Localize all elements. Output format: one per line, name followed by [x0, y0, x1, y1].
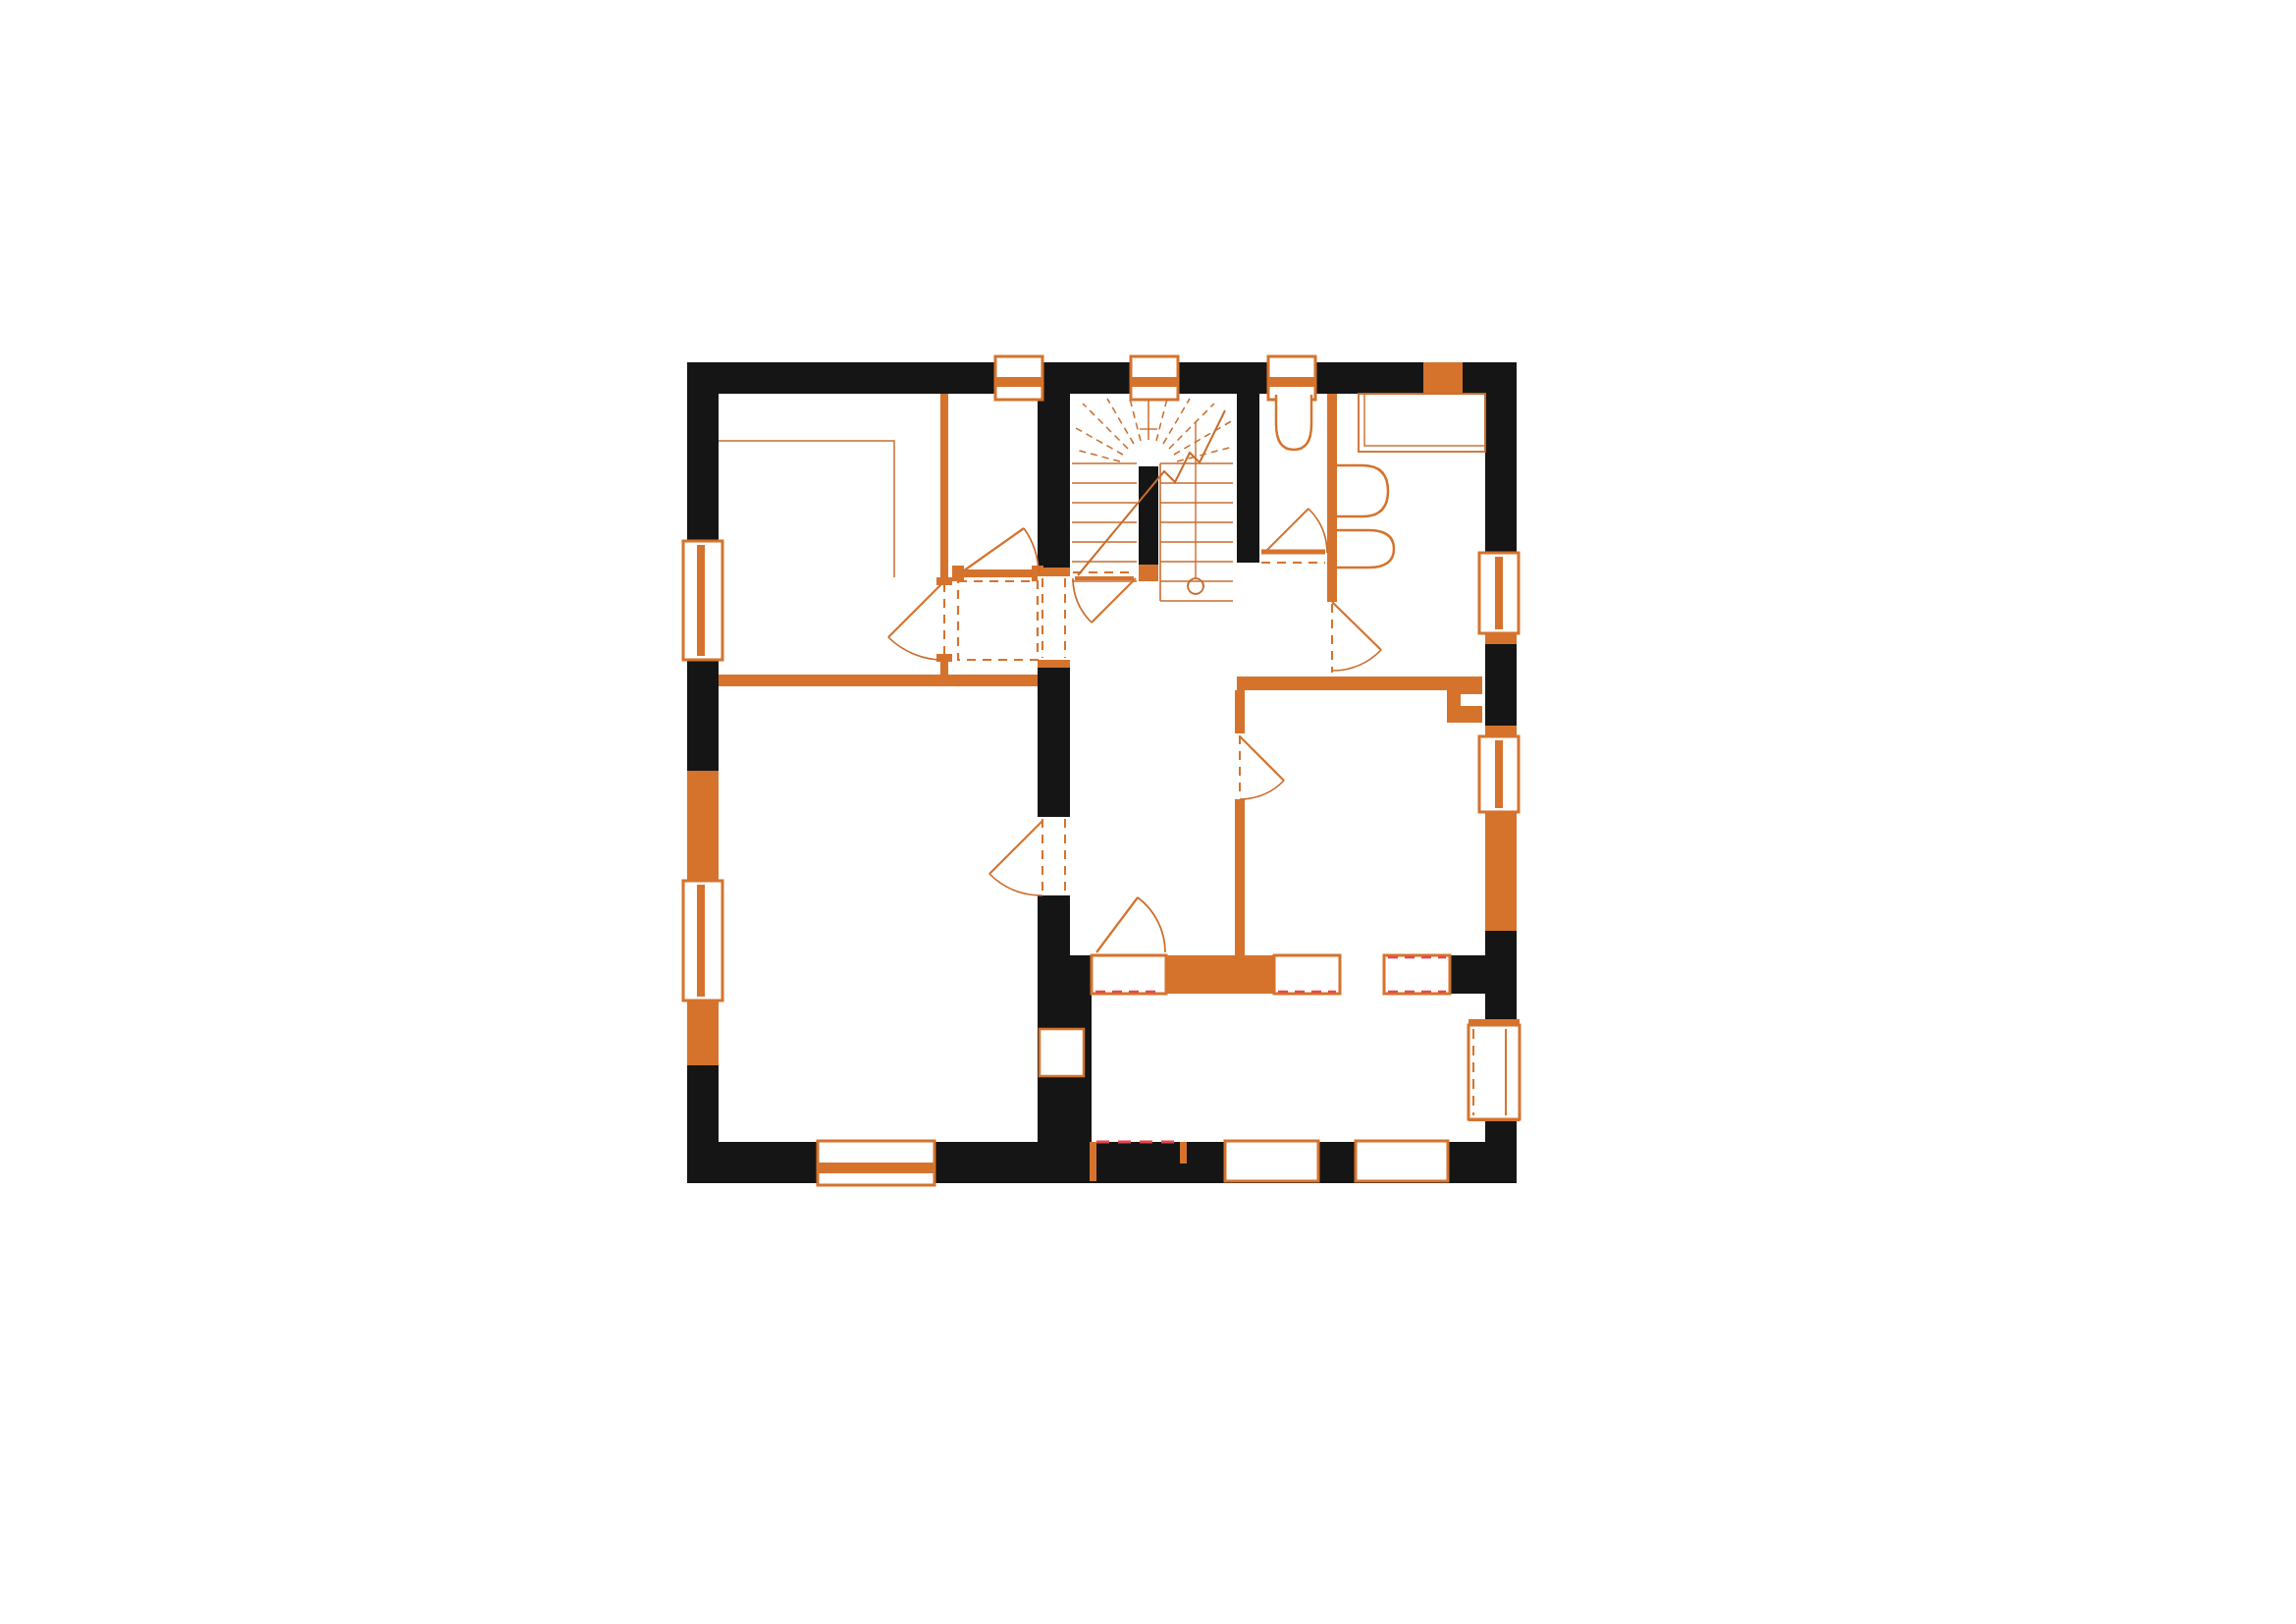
- wall-stair-right: [1237, 394, 1259, 563]
- door-jamb: [952, 566, 964, 581]
- stair-winder-ray: [1156, 399, 1167, 441]
- wall-infill-top: [1423, 362, 1463, 394]
- floor-plan: [0, 0, 2296, 1624]
- wall-bathroom-left: [1327, 394, 1337, 602]
- door-leaf: [989, 821, 1042, 874]
- door-leaf: [1096, 897, 1138, 952]
- window-sash: [697, 545, 705, 656]
- wash-basin: [1337, 465, 1388, 516]
- wall-infill-left-1: [687, 771, 719, 881]
- stair-newel-cap: [1139, 565, 1158, 581]
- stair-winder-ray: [1163, 399, 1190, 444]
- door-leaf: [960, 528, 1024, 573]
- wall-bedroom-top: [1237, 677, 1447, 690]
- toilet: [1276, 395, 1311, 450]
- wall-bedroom-left-upper: [1235, 690, 1245, 733]
- window-veranda-bottom-1: [1225, 1141, 1318, 1181]
- door-swing-arc: [1138, 897, 1165, 952]
- chimney-flue: [1461, 694, 1482, 706]
- window-sill: [1485, 633, 1517, 644]
- window-sash: [1495, 740, 1503, 808]
- closet-dashed-outline: [958, 581, 1038, 660]
- door-swing-arc: [1332, 650, 1381, 671]
- wall-infill-left-2: [687, 1001, 719, 1065]
- floor-plan-page: [0, 0, 2296, 1624]
- closet-outline: [719, 441, 894, 577]
- door-leaf: [888, 581, 944, 637]
- stair-winder-ray: [1076, 450, 1120, 461]
- window-sash: [995, 377, 1042, 387]
- stair-winder-ray: [1169, 404, 1214, 449]
- stair-winder-ray: [1076, 428, 1123, 455]
- door-leaf: [1264, 509, 1308, 553]
- door-leaf: [1332, 602, 1381, 650]
- window-veranda-right: [1468, 1025, 1520, 1119]
- partition-entry-lower: [940, 660, 948, 675]
- vanity-counter-inner: [1364, 394, 1485, 446]
- window-sash: [818, 1163, 934, 1173]
- wash-basin: [1337, 530, 1394, 568]
- closet-lintel: [958, 569, 1039, 577]
- window-veranda-bottom-2: [1356, 1141, 1448, 1181]
- wall-stair-left-upper: [1038, 394, 1070, 568]
- stair-winder-ray: [1083, 404, 1128, 449]
- stair-winder-ray: [1107, 399, 1134, 444]
- door-swing-arc: [888, 637, 944, 660]
- entrance-jamb: [1090, 1142, 1096, 1181]
- wall-living-top: [719, 675, 1038, 686]
- window-row-3: [1384, 955, 1450, 994]
- vanity-counter: [1359, 394, 1485, 452]
- wall-niche: [1040, 1029, 1084, 1076]
- door-swing-arc: [1240, 781, 1284, 799]
- stair-winder-ray: [1130, 399, 1141, 441]
- entrance-jamb: [1180, 1142, 1187, 1164]
- door-leaf: [1240, 736, 1284, 781]
- door-swing-arc: [989, 874, 1042, 895]
- door-swing-arc: [1073, 578, 1092, 623]
- wall-row-right-pier: [1450, 955, 1485, 994]
- window-sash: [1268, 377, 1315, 387]
- window-row-2: [1274, 955, 1340, 994]
- partition-entry-upper: [940, 394, 948, 581]
- window-sash: [1495, 557, 1503, 629]
- wall-hall-left-mid: [1038, 668, 1070, 817]
- wall-hall-left-lower: [1038, 895, 1070, 1142]
- window-sash: [1131, 377, 1178, 387]
- veranda-door-opening: [1092, 955, 1166, 994]
- row-pier: [1166, 955, 1274, 994]
- door-swing-arc: [1308, 509, 1327, 553]
- door-leaf: [1092, 578, 1136, 623]
- wall-opening-cap: [1038, 660, 1070, 668]
- wall-bedroom-left-lower: [1235, 799, 1245, 955]
- wall-infill-right: [1485, 812, 1517, 931]
- window-sash: [697, 885, 705, 997]
- window-sill: [1485, 726, 1517, 736]
- wall-exterior-top: [687, 362, 1517, 394]
